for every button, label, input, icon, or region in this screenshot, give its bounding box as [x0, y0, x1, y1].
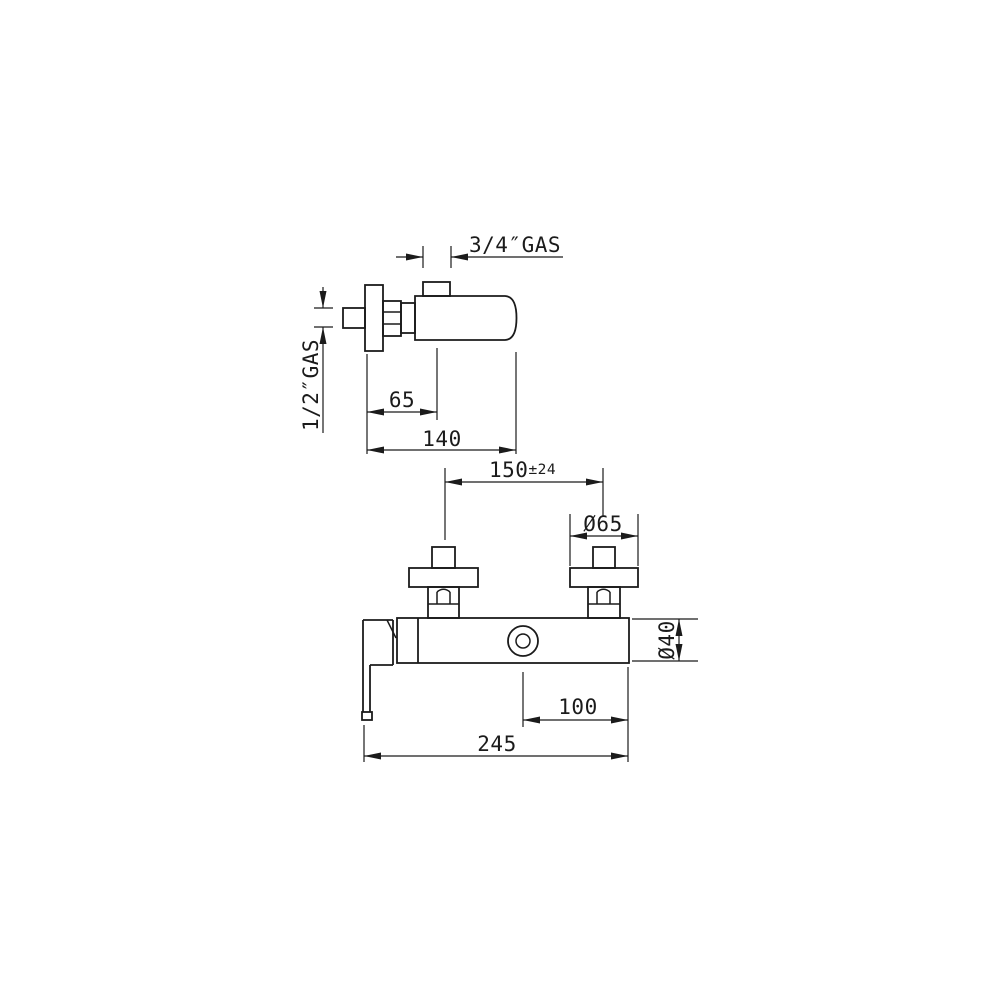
dimension-d40-label: Ø40 — [655, 620, 679, 659]
right-hex-nut — [588, 587, 620, 618]
collar-side — [401, 303, 415, 333]
diverter-inner-circle — [516, 634, 530, 648]
left-inlet-stub — [432, 547, 455, 568]
inlet-stub-side — [343, 308, 365, 328]
dimension-140-label: 140 — [422, 427, 461, 451]
dimension-d65-label: Ø65 — [583, 512, 622, 536]
right-wall-flange — [570, 568, 638, 587]
dimension-245-label: 245 — [477, 732, 516, 756]
dimension-65-label: 65 — [389, 388, 415, 412]
handle-taper-line — [387, 620, 396, 638]
dimension-150: 150±24 — [445, 458, 603, 540]
dimension-d40: Ø40 — [632, 619, 698, 661]
lever-handle — [362, 620, 396, 720]
outlet-thread-label: 3/4″GAS — [469, 233, 561, 257]
side-view: 3/4″GAS 1/2″GAS 65 140 — [299, 233, 563, 454]
dimension-150-label: 150±24 — [489, 458, 556, 482]
left-wall-flange — [409, 568, 478, 587]
technical-drawing-page: 3/4″GAS 1/2″GAS 65 140 — [0, 0, 1000, 1000]
dimension-100-label: 100 — [558, 695, 597, 719]
inlet-thread-label: 1/2″GAS — [299, 339, 323, 431]
front-view: 150±24 Ø65 Ø40 100 245 — [362, 458, 698, 762]
left-inlet-connection — [409, 547, 478, 618]
mixer-body-front — [397, 618, 629, 663]
dimension-inlet-thread: 1/2″GAS — [299, 287, 333, 433]
dimension-outlet-thread: 3/4″GAS — [396, 233, 563, 268]
outlet-fitting-side — [423, 282, 450, 296]
dimension-245: 245 — [364, 725, 628, 762]
dimension-100: 100 — [523, 667, 628, 762]
shower-mixer-technical-drawing: 3/4″GAS 1/2″GAS 65 140 — [0, 0, 1000, 1000]
right-inlet-stub — [593, 547, 615, 568]
handle-tip — [362, 712, 372, 720]
wall-flange-side — [365, 285, 383, 351]
left-hex-nut — [428, 587, 459, 618]
diverter-outer-circle — [508, 626, 538, 656]
hex-nut-side — [383, 301, 401, 336]
mixer-body-side — [415, 296, 517, 340]
right-inlet-connection — [570, 547, 638, 618]
dimension-d65: Ø65 — [570, 512, 638, 566]
